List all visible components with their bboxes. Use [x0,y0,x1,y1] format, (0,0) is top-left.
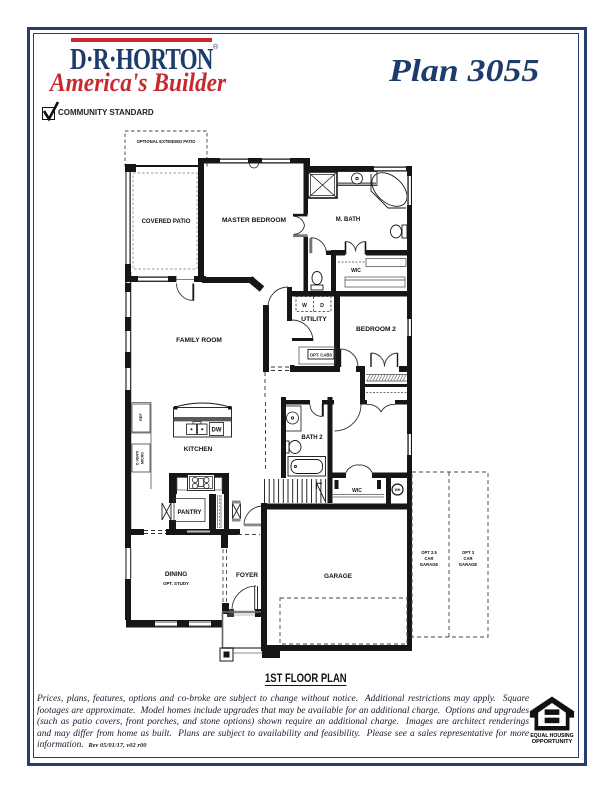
svg-text:OPT 2.5: OPT 2.5 [421,550,437,555]
svg-text:PANTRY: PANTRY [178,510,202,516]
svg-text:O VENT/: O VENT/ [136,451,140,465]
svg-text:OPTIONAL EXTENDED PATIO: OPTIONAL EXTENDED PATIO [137,139,197,144]
svg-text:FAMILY ROOM: FAMILY ROOM [176,337,222,344]
svg-text:KITCHEN: KITCHEN [184,446,213,453]
svg-text:OPT 3: OPT 3 [462,550,475,555]
svg-text:GARAGE: GARAGE [324,573,353,580]
svg-text:DW: DW [212,428,222,434]
svg-text:OPT. CABS: OPT. CABS [310,353,333,358]
svg-text:CAR: CAR [463,556,472,561]
svg-text:BATH 2: BATH 2 [301,435,323,441]
svg-text:GARAGE: GARAGE [459,562,478,567]
svg-text:UTILITY: UTILITY [301,316,327,323]
svg-text:MASTER BEDROOM: MASTER BEDROOM [222,217,287,224]
svg-text:OPPORTUNITY: OPPORTUNITY [532,739,573,744]
svg-text:FOYER: FOYER [236,572,258,579]
svg-text:OPT. STUDY: OPT. STUDY [163,581,189,586]
svg-text:M. BATH: M. BATH [336,217,361,223]
svg-text:D: D [320,303,324,309]
svg-text:W: W [302,303,307,309]
svg-text:WIC: WIC [351,268,361,274]
svg-text:MICRO: MICRO [141,452,145,464]
svg-text:WH: WH [395,488,401,492]
svg-text:WIC: WIC [352,488,362,494]
svg-text:REF: REF [139,413,143,421]
svg-text:DINING: DINING [165,571,187,578]
svg-text:GARAGE: GARAGE [420,562,439,567]
svg-text:BEDROOM 2: BEDROOM 2 [356,326,396,333]
svg-text:COVERED PATIO: COVERED PATIO [142,219,191,225]
svg-text:CAR: CAR [424,556,433,561]
